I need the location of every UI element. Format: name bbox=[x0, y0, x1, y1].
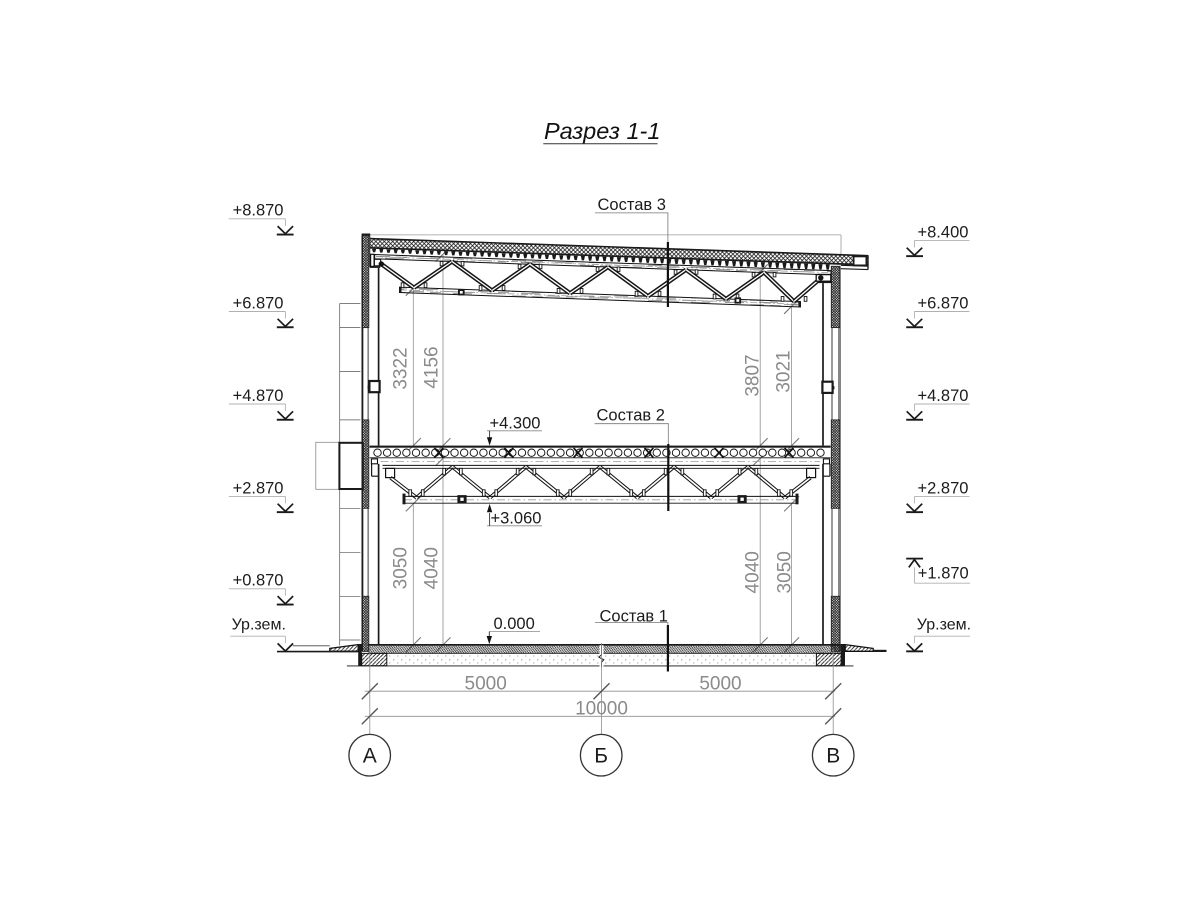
svg-text:+6.870: +6.870 bbox=[918, 294, 969, 312]
svg-text:+1.870: +1.870 bbox=[918, 564, 969, 582]
svg-text:Ур.зем.: Ур.зем. bbox=[232, 617, 286, 634]
svg-text:Разрез 1-1: Разрез 1-1 bbox=[544, 118, 660, 144]
svg-text:3322: 3322 bbox=[391, 347, 412, 389]
svg-text:+4.870: +4.870 bbox=[918, 387, 969, 405]
svg-text:4040: 4040 bbox=[743, 551, 764, 593]
svg-text:5000: 5000 bbox=[465, 673, 507, 694]
svg-text:0.000: 0.000 bbox=[494, 615, 535, 633]
svg-text:4040: 4040 bbox=[422, 547, 443, 589]
svg-text:Ур.зем.: Ур.зем. bbox=[917, 617, 971, 634]
svg-text:10000: 10000 bbox=[575, 699, 628, 720]
svg-text:Б: Б bbox=[594, 745, 608, 768]
svg-text:В: В bbox=[826, 745, 840, 768]
svg-text:4156: 4156 bbox=[422, 346, 443, 388]
svg-text:5000: 5000 bbox=[699, 673, 741, 694]
svg-text:А: А bbox=[363, 745, 377, 768]
svg-text:+3.060: +3.060 bbox=[491, 509, 542, 527]
svg-text:3050: 3050 bbox=[391, 547, 412, 589]
svg-text:3021: 3021 bbox=[774, 350, 795, 392]
svg-text:+2.870: +2.870 bbox=[918, 479, 969, 497]
svg-text:+0.870: +0.870 bbox=[233, 572, 284, 590]
svg-text:3807: 3807 bbox=[743, 354, 764, 396]
svg-text:+4.300: +4.300 bbox=[490, 414, 541, 432]
svg-text:3050: 3050 bbox=[775, 551, 796, 593]
svg-text:Состав 2: Состав 2 bbox=[597, 407, 665, 425]
svg-text:Состав 3: Состав 3 bbox=[598, 196, 666, 214]
svg-text:+4.870: +4.870 bbox=[233, 387, 284, 405]
svg-text:+6.870: +6.870 bbox=[233, 294, 284, 312]
svg-text:+8.400: +8.400 bbox=[918, 223, 969, 241]
svg-text:+8.870: +8.870 bbox=[233, 202, 284, 220]
svg-text:+2.870: +2.870 bbox=[233, 479, 284, 497]
